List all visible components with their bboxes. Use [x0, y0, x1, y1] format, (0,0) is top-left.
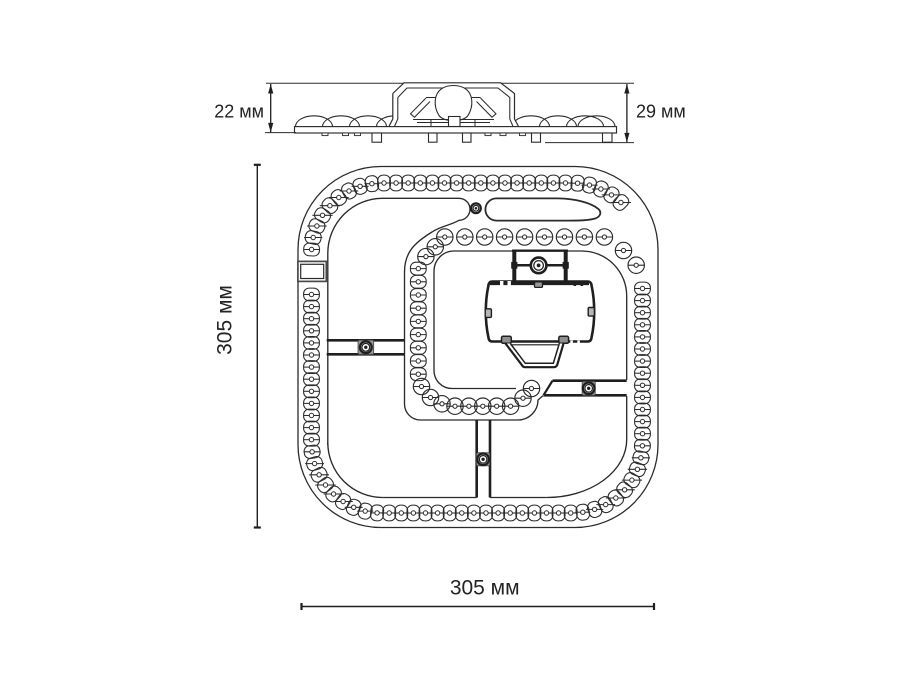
svg-text:305 мм: 305 мм — [214, 285, 237, 355]
svg-text:29 мм: 29 мм — [636, 102, 686, 122]
svg-text:22 мм: 22 мм — [214, 102, 264, 122]
svg-text:305 мм: 305 мм — [450, 577, 520, 600]
